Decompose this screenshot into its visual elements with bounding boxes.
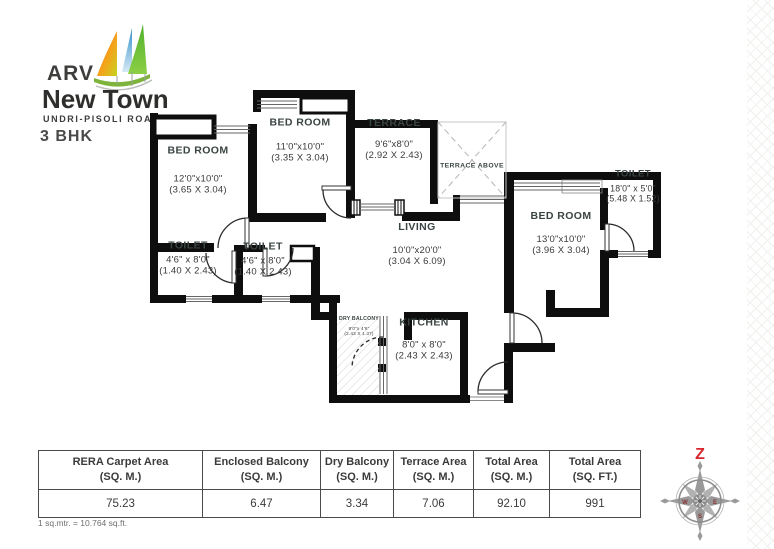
compass-south-letter: S bbox=[698, 514, 702, 520]
value-total-sqft: 991 bbox=[550, 490, 641, 518]
room-label-toilet-2: TOILET 4'6" x 8'0" (1.40 X 2.43) bbox=[234, 241, 292, 278]
room-label-toilet-1: TOILET 4'6" x 8'0" (1.40 X 2.43) bbox=[159, 240, 217, 277]
value-total-sqm: 92.10 bbox=[474, 490, 550, 518]
room-label-bedroom-2: BED ROOM 11'0"x10'0" (3.35 X 3.04) bbox=[270, 117, 331, 164]
area-table-header-row: RERA Carpet Area(SQ. M.) Enclosed Balcon… bbox=[39, 451, 641, 490]
area-table: RERA Carpet Area(SQ. M.) Enclosed Balcon… bbox=[38, 450, 641, 518]
room-label-terrace-above: TERRACE ABOVE bbox=[440, 163, 504, 170]
page: ARV New Town UNDRI-PISOLI ROAD 3 BHK bbox=[0, 0, 774, 549]
room-label-terrace: TERRACE 9'6"x8'0" (2.92 X 2.43) bbox=[365, 117, 423, 161]
compass-west-letter: W bbox=[682, 500, 688, 506]
area-table-value-row: 75.23 6.47 3.34 7.06 92.10 991 bbox=[39, 490, 641, 518]
room-label-bedroom-3: BED ROOM 13'0"x10'0" (3.96 X 3.04) bbox=[531, 210, 592, 256]
col-header-total-sqft: Total Area(SQ. FT.) bbox=[550, 451, 641, 490]
value-terrace-area: 7.06 bbox=[394, 490, 474, 518]
col-header-terrace-area: Terrace Area(SQ. M.) bbox=[394, 451, 474, 490]
room-label-dry-balcony: DRY BALCONY 8'0"x 4'6" (2.43 X 1.37) bbox=[339, 316, 379, 336]
room-label-bedroom-1: BED ROOM 12'0"x10'0" (3.65 X 3.04) bbox=[168, 145, 229, 196]
value-dry-balcony: 3.34 bbox=[321, 490, 394, 518]
value-rera-carpet: 75.23 bbox=[39, 490, 203, 518]
conversion-footnote: 1 sq.mtr. = 10.764 sq.ft. bbox=[38, 518, 127, 528]
compass-icon: Z bbox=[660, 441, 740, 543]
value-enclosed-balcony: 6.47 bbox=[203, 490, 321, 518]
room-label-kitchen: KITCHEN 8'0" x 8'0" (2.43 X 2.43) bbox=[395, 317, 453, 362]
room-label-living: LIVING 10'0"x20'0" (3.04 X 6.09) bbox=[388, 221, 446, 267]
col-header-rera-carpet: RERA Carpet Area(SQ. M.) bbox=[39, 451, 203, 490]
room-label-toilet-3: TOILET 18'0" x 5'0" (5.48 X 1.52) bbox=[606, 169, 659, 204]
col-header-enclosed-balcony: Enclosed Balcony(SQ. M.) bbox=[203, 451, 321, 490]
col-header-total-sqm: Total Area(SQ. M.) bbox=[474, 451, 550, 490]
col-header-dry-balcony: Dry Balcony(SQ. M.) bbox=[321, 451, 394, 490]
compass-north-letter: Z bbox=[695, 446, 705, 463]
compass-east-letter: E bbox=[713, 500, 717, 506]
